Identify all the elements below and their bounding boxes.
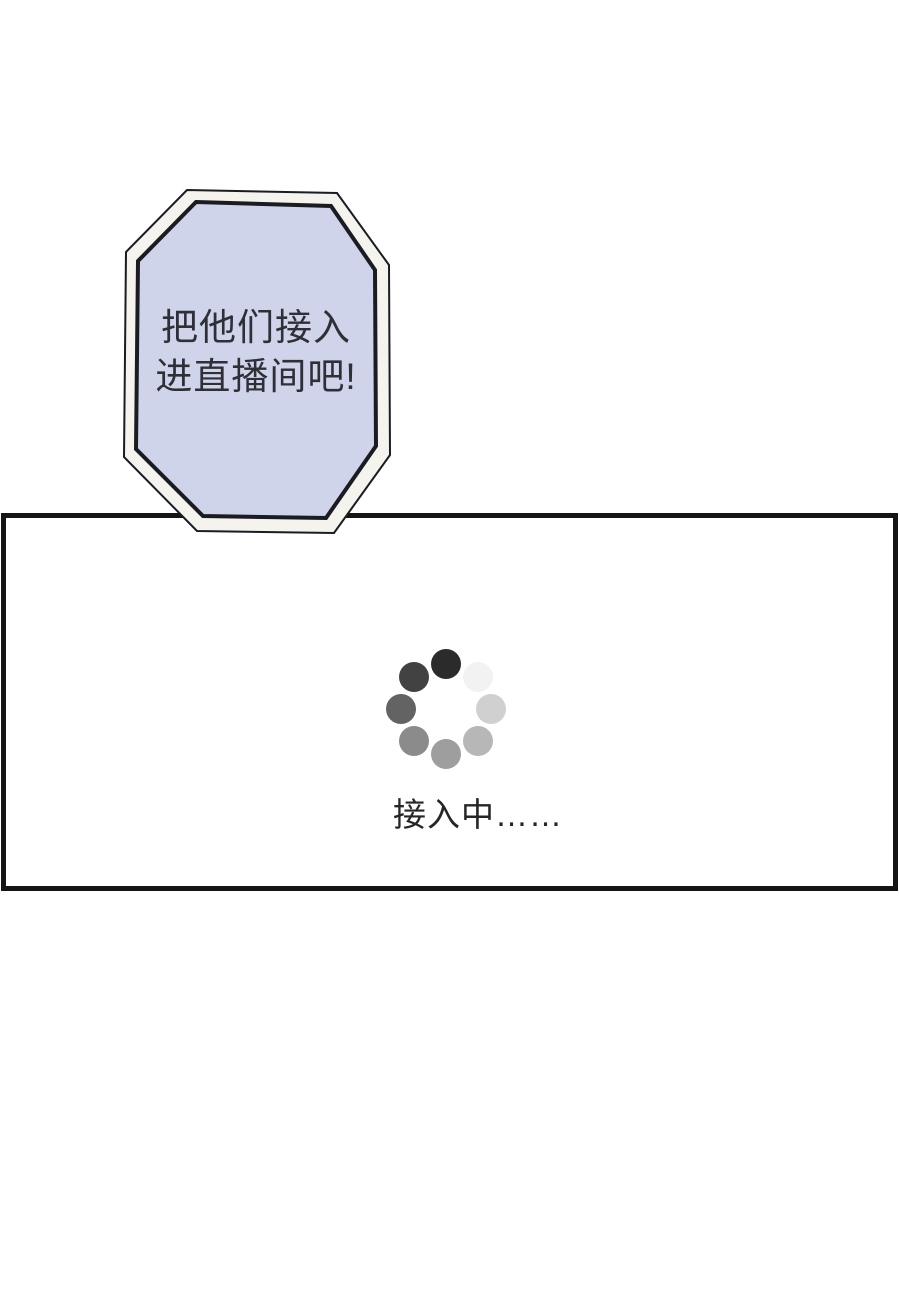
spinner-dot <box>463 662 493 692</box>
loading-panel: 接入中…… <box>1 513 898 891</box>
speech-bubble-text: 把他们接入 进直播间吧! <box>122 303 390 401</box>
comic-page: 接入中…… 把他们接入 进直播间吧! <box>0 0 900 1296</box>
spinner-dot <box>386 694 416 724</box>
loading-spinner-icon <box>386 649 506 769</box>
spinner-dot <box>476 694 506 724</box>
spinner-dot <box>399 662 429 692</box>
spinner-dot <box>431 649 461 679</box>
loading-status-text: 接入中…… <box>393 788 563 836</box>
spinner-dot <box>399 726 429 756</box>
spinner-dot <box>463 726 493 756</box>
speech-bubble-line-2: 进直播间吧! <box>122 352 390 401</box>
speech-bubble-line-1: 把他们接入 <box>122 303 390 352</box>
spinner-dot <box>431 739 461 769</box>
